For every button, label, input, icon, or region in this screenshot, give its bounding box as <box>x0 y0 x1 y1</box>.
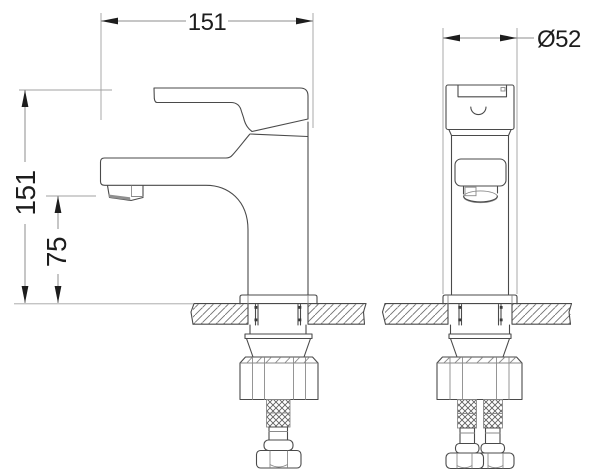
arrow-up-icon <box>55 196 62 213</box>
flange-outline <box>240 295 317 304</box>
tapered-shank <box>451 339 510 358</box>
thread-mark <box>458 319 461 322</box>
spout-outline <box>101 135 250 295</box>
thread-mark <box>255 319 258 322</box>
thread-mark <box>299 306 302 309</box>
aerator-front <box>464 186 498 202</box>
arrow-down-icon <box>55 286 62 303</box>
hose-tube-left <box>460 428 475 444</box>
dimension-spout-height: 75 <box>41 196 72 303</box>
washer <box>245 334 312 339</box>
hose-tube <box>269 427 288 440</box>
threaded-shank <box>459 305 501 326</box>
body-top-edge <box>250 134 308 137</box>
countertop-hatch <box>512 304 571 324</box>
countertop-hatch <box>308 304 365 324</box>
dim-label-diameter: Ø52 <box>537 26 581 53</box>
extension-lines <box>14 13 517 304</box>
arrow-left-icon <box>101 18 118 25</box>
flange-outline <box>443 295 517 304</box>
threaded-shank <box>256 305 301 326</box>
base-flange <box>240 295 317 304</box>
hex-fitting-left <box>446 453 484 469</box>
aerator-rim <box>464 191 498 203</box>
hose-hex-fitting <box>257 451 302 469</box>
base-flange-front <box>443 295 517 304</box>
shank-neck <box>451 325 510 334</box>
faucet-technical-drawing: 151 151 75 Ø52 <box>0 0 600 470</box>
flange-ticks <box>448 296 512 304</box>
handle-lever <box>154 88 308 132</box>
flange-ticks <box>248 296 308 304</box>
tapered-shank <box>247 339 311 358</box>
dim-label-overall-height: 151 <box>10 170 41 215</box>
dim-label-top-width: 151 <box>188 9 227 36</box>
side-view <box>101 88 319 468</box>
handle-front <box>446 85 514 130</box>
shank-neck <box>250 325 306 334</box>
arrow-up-icon <box>22 90 29 107</box>
arrow-right-icon <box>296 18 313 25</box>
aerator-inner <box>132 186 144 197</box>
arrow-right-icon <box>500 35 517 42</box>
countertop-hatch <box>385 304 448 324</box>
arrow-down-icon <box>22 286 29 303</box>
dimension-overall-height: 151 <box>10 90 41 303</box>
mounting-hardware <box>240 305 318 469</box>
drawing-canvas: 151 151 75 Ø52 <box>0 0 600 470</box>
thread-mark <box>255 306 258 309</box>
thread-mark <box>458 306 461 309</box>
dimension-diameter: Ø52 <box>443 26 581 53</box>
arrow-left-icon <box>443 35 460 42</box>
washer <box>449 334 511 339</box>
front-view <box>437 85 522 469</box>
thread-mark <box>500 319 503 322</box>
thread-mark <box>299 319 302 322</box>
countertop-section <box>191 304 572 325</box>
hose-tube-right <box>486 428 501 444</box>
dim-label-spout-height: 75 <box>41 237 72 267</box>
dimension-top-width: 151 <box>101 9 313 36</box>
hose-collar-left <box>456 444 480 454</box>
neck <box>449 130 511 136</box>
mounting-hardware-front <box>437 305 522 469</box>
countertop-hole-edges <box>248 304 512 324</box>
spout-face <box>455 159 506 186</box>
aerator <box>108 186 144 201</box>
countertop-hatch <box>193 304 248 324</box>
hose-collar-right <box>481 444 505 454</box>
hose-collar <box>264 440 293 451</box>
thread-mark <box>500 306 503 309</box>
